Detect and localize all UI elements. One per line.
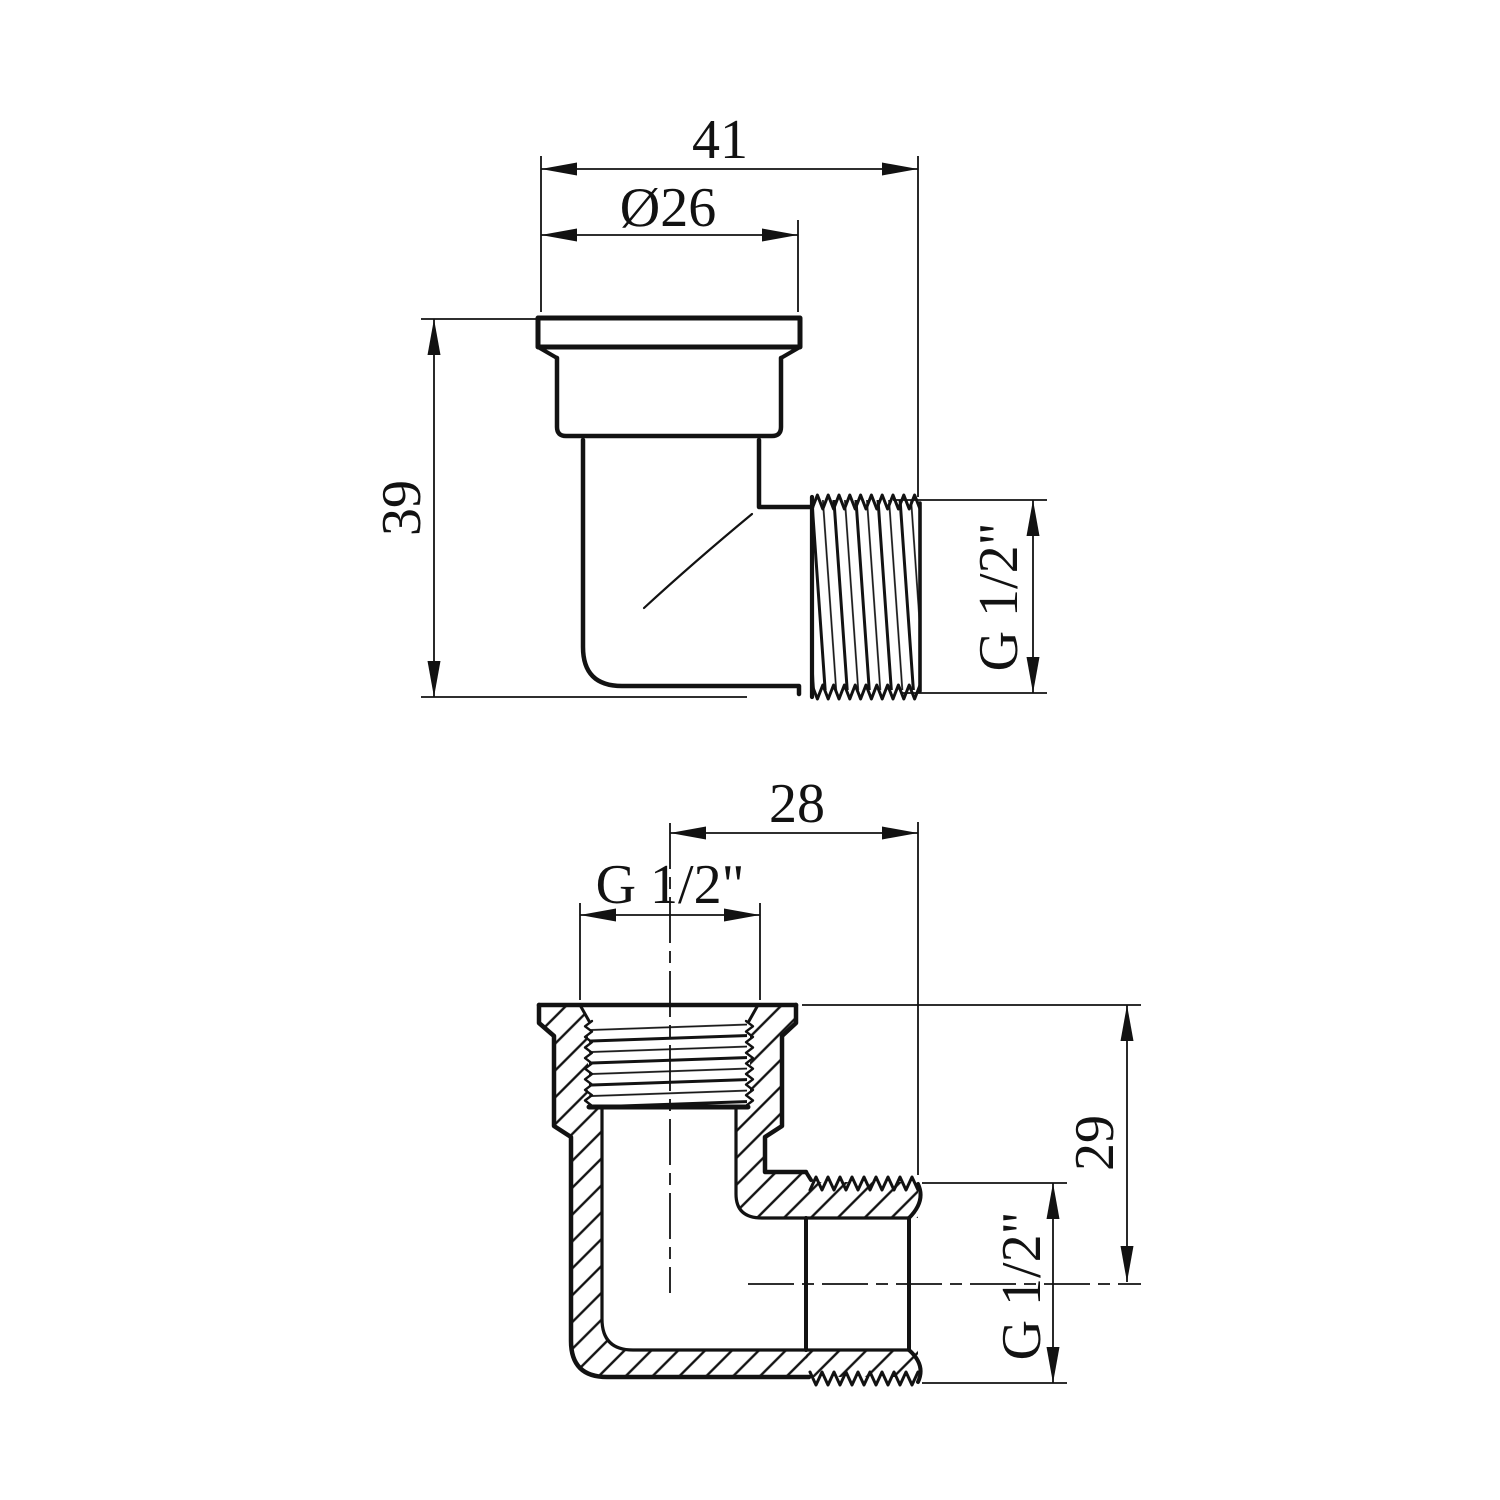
dim-label-39: 39	[371, 480, 433, 536]
dim-bottom-center-height: 29	[802, 1005, 1141, 1282]
dim-label-g12-male: G 1/2"	[991, 1212, 1053, 1361]
technical-drawing-page: 41 Ø26 39 G 1/2"	[0, 0, 1500, 1500]
dim-top-cap-diameter: Ø26	[541, 177, 798, 312]
elbow-fitting-drawing: 41 Ø26 39 G 1/2"	[0, 0, 1500, 1500]
dim-label-29: 29	[1064, 1115, 1126, 1171]
dim-label-g12-female: G 1/2"	[596, 854, 745, 916]
bottom-view: 28 G 1/2" 29 G 1/2"	[539, 773, 1141, 1385]
dim-bottom-male-thread: G 1/2"	[922, 1183, 1067, 1383]
dim-label-28: 28	[769, 773, 825, 835]
top-view-part	[538, 318, 920, 699]
dim-top-overall-width: 41	[541, 109, 918, 497]
dim-label-41: 41	[692, 109, 748, 171]
dim-label-g12-top-view: G 1/2"	[968, 523, 1030, 672]
dim-bottom-center-to-end: 28	[670, 773, 918, 1175]
top-view: 41 Ø26 39 G 1/2"	[371, 109, 1047, 699]
dim-label-d26: Ø26	[620, 177, 716, 239]
